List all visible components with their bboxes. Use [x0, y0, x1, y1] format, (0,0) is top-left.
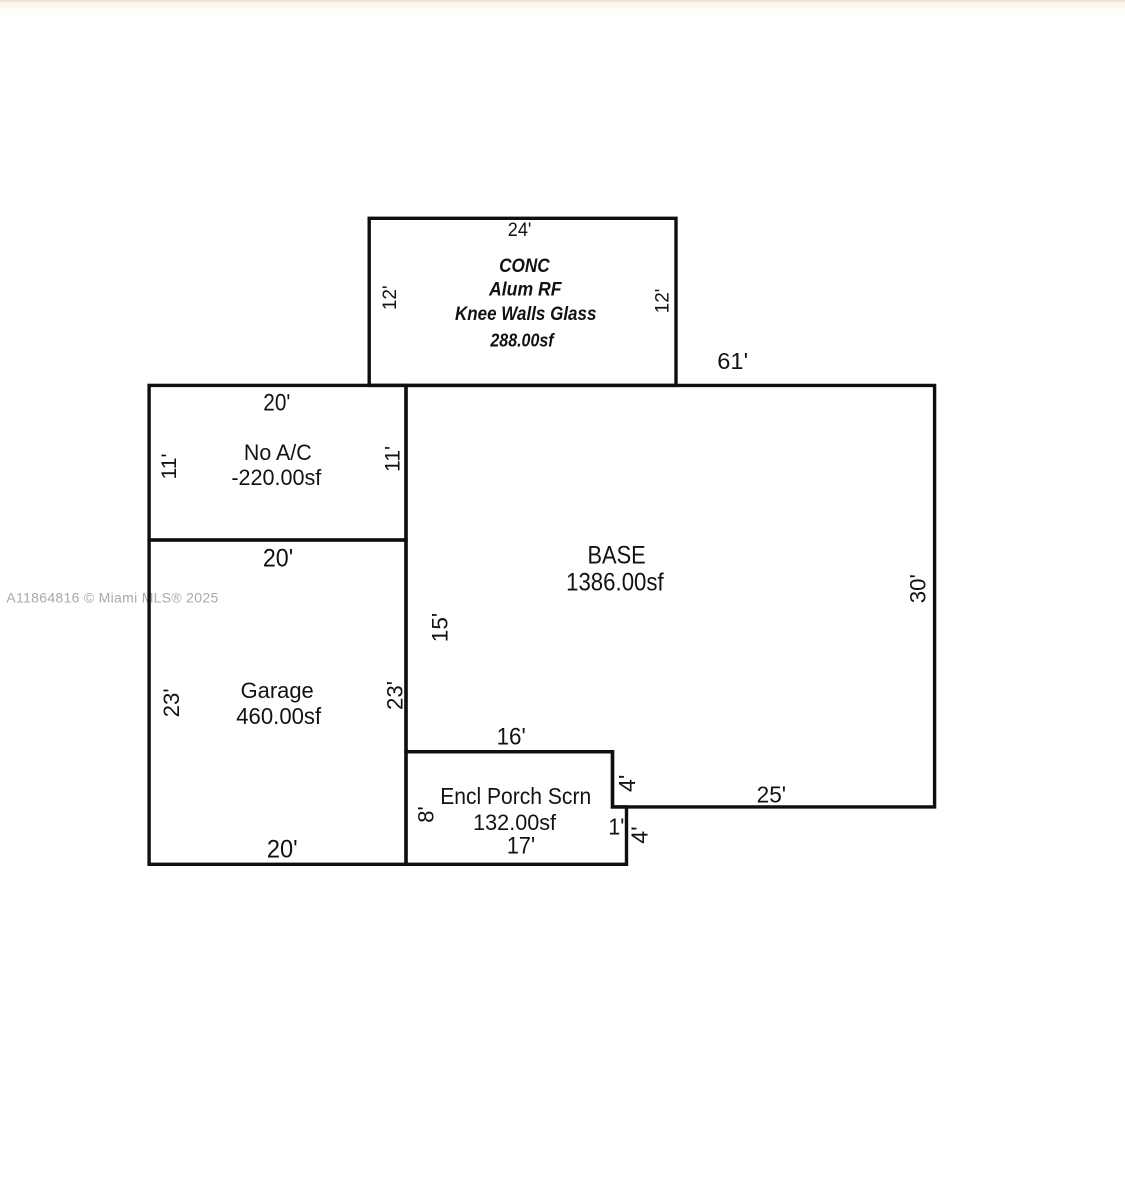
svg-text:25': 25' — [757, 782, 787, 808]
svg-text:12': 12' — [653, 289, 674, 314]
svg-text:460.00sf: 460.00sf — [236, 703, 321, 729]
svg-text:11': 11' — [382, 446, 405, 472]
svg-text:132.00sf: 132.00sf — [473, 810, 557, 835]
svg-text:8': 8' — [414, 806, 439, 823]
svg-text:Alum RF: Alum RF — [488, 279, 562, 301]
svg-text:16': 16' — [497, 724, 526, 751]
svg-text:23': 23' — [382, 681, 407, 710]
svg-text:CONC: CONC — [499, 256, 551, 277]
svg-text:Encl Porch Scrn: Encl Porch Scrn — [440, 783, 591, 809]
svg-text:288.00sf: 288.00sf — [490, 330, 556, 351]
svg-text:12': 12' — [380, 285, 401, 310]
svg-text:4': 4' — [614, 775, 640, 792]
svg-text:61': 61' — [717, 348, 748, 374]
svg-text:15': 15' — [427, 613, 452, 642]
svg-text:4': 4' — [627, 826, 653, 843]
svg-text:24': 24' — [508, 219, 532, 241]
svg-text:11': 11' — [158, 453, 181, 479]
svg-text:No A/C: No A/C — [244, 440, 312, 465]
svg-text:Garage: Garage — [241, 678, 314, 703]
svg-text:23': 23' — [159, 688, 184, 717]
svg-text:20': 20' — [263, 390, 290, 417]
svg-text:A11864816 © Miami MLS® 2025: A11864816 © Miami MLS® 2025 — [6, 589, 218, 605]
svg-text:1386.00sf: 1386.00sf — [566, 570, 664, 597]
svg-text:20': 20' — [263, 545, 293, 573]
svg-text:17': 17' — [507, 834, 535, 860]
svg-text:1': 1' — [608, 814, 624, 840]
svg-text:30': 30' — [906, 574, 931, 603]
svg-text:-220.00sf: -220.00sf — [231, 465, 322, 490]
svg-text:20': 20' — [267, 836, 298, 864]
svg-text:BASE: BASE — [588, 542, 646, 569]
svg-text:Knee Walls Glass: Knee Walls Glass — [455, 304, 597, 325]
